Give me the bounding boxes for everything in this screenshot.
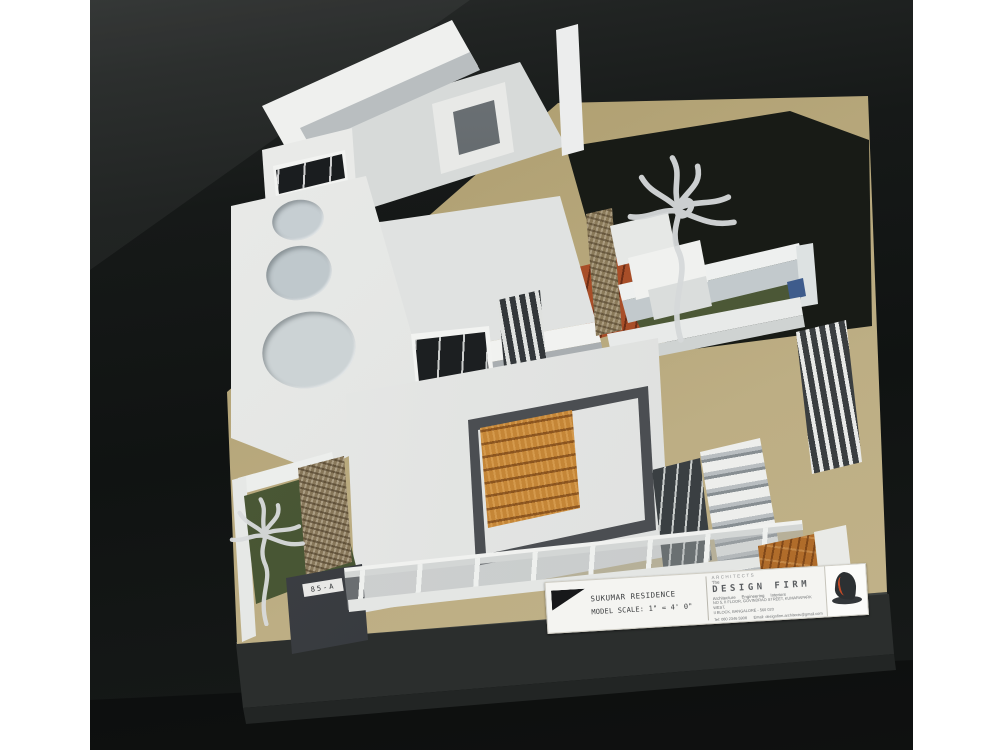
project-name: SUKUMAR RESIDENCE (590, 587, 706, 603)
wire-tree-sculpture-right (608, 138, 748, 343)
black-triangle-icon (551, 589, 586, 611)
architect-firm-card: ARCHITECTS The DESIGN FIRM Architecture … (706, 566, 827, 623)
photo-margin-right (913, 0, 1000, 750)
firm-logo (824, 564, 868, 616)
wire-tree-sculpture-left (212, 486, 317, 626)
label-triangle-cell (546, 580, 593, 633)
photo-margin-left (0, 0, 90, 750)
architectural-model-photo: 85-A (0, 0, 1000, 750)
model-scale: MODEL SCALE: 1" = 4' 0" (591, 601, 707, 616)
project-name-cell: SUKUMAR RESIDENCE MODEL SCALE: 1" = 4' 0… (589, 573, 708, 630)
